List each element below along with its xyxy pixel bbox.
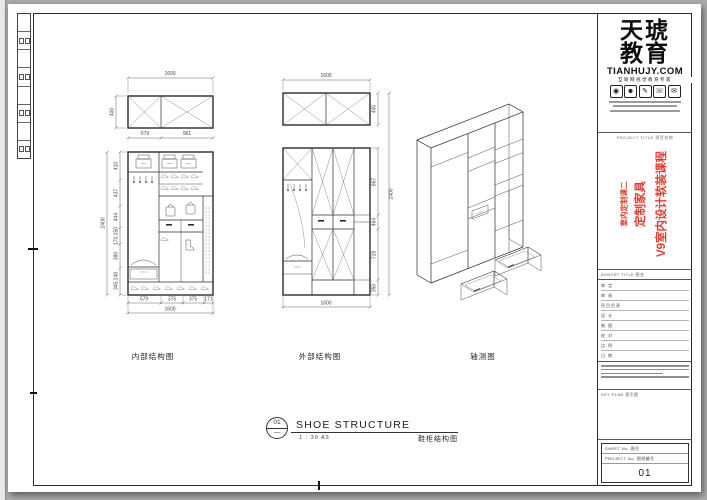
- revision-reference-strip: [17, 13, 31, 159]
- dim-label: 400: [372, 105, 378, 114]
- view-label-external: 外部结构图: [280, 351, 360, 362]
- border-tick: [28, 248, 38, 250]
- dim-label: 1600: [164, 307, 175, 313]
- view-label-axon: 轴测图: [443, 351, 523, 362]
- field-row: 校 对: [601, 331, 689, 341]
- dim-label: 444: [114, 213, 120, 222]
- project-title-box: PROJECT TITLE 项目名称 V9室内设计软装课程 定制家具 室内定制课…: [598, 133, 692, 270]
- dim-label: 2400: [101, 217, 107, 228]
- ref-cell: [18, 14, 30, 32]
- signature-fields: 审 定 审 核 项目负责 设 计 制 图 校 对 比 例 日 期: [598, 280, 692, 362]
- dim-label: 719: [372, 251, 378, 260]
- ref-cell: [18, 32, 30, 50]
- sheet-title-chinese: 鞋柜结构图: [390, 434, 458, 444]
- sheet-number-box: SHEET No. 图号 PROJECT No. 图纸编号 01: [601, 443, 689, 483]
- title-block: 天琥 教育 TIANHUJY.COM 互联网视觉教育专家 ◉ ☻ ✎ ☏ ✉ P…: [598, 13, 692, 486]
- phone-icon: ☏: [653, 85, 666, 98]
- ref-cell: [18, 123, 30, 141]
- brand-address-line: [609, 101, 681, 103]
- sheet-no-label: SHEET No. 图号: [602, 444, 688, 454]
- dim-label: 375: [189, 297, 198, 303]
- notes-block: [598, 362, 692, 390]
- dim-label: 400: [110, 108, 116, 117]
- detail-number-divider: —: [267, 429, 287, 438]
- dim-label: 410: [114, 162, 120, 171]
- sheet-scale: 1 : 30 A3: [299, 435, 330, 441]
- note-line: [601, 376, 689, 378]
- field-row: 审 核: [601, 291, 689, 301]
- dim-label: 961: [183, 131, 192, 137]
- project-no-label: PROJECT No. 图纸编号: [602, 454, 688, 464]
- axonometric-drawing: [400, 88, 565, 338]
- eye-icon: ◉: [610, 85, 623, 98]
- border-tick: [30, 392, 37, 394]
- detail-number-bubble: 01 —: [266, 417, 288, 439]
- field-row: 日 期: [601, 351, 689, 360]
- brand-address-line: [613, 105, 677, 107]
- brand-domain[interactable]: TIANHUJY.COM: [598, 66, 692, 77]
- dim-label: 1600: [320, 301, 331, 307]
- note-line: [601, 365, 689, 367]
- internal-structure-drawing: 1600 400 579 961: [95, 62, 225, 322]
- external-structure-drawing: 1600 400: [250, 62, 410, 322]
- ref-cell: [18, 87, 30, 105]
- dim-label: 1600: [164, 71, 175, 77]
- dim-label: 437: [114, 189, 120, 198]
- field-row: 项目负责: [601, 301, 689, 311]
- note-line: [601, 369, 689, 371]
- brand-name-line1: 天琥: [598, 19, 692, 42]
- dim-label: 345,148: [114, 272, 120, 290]
- field-row: 比 例: [601, 341, 689, 351]
- people-icon: ☻: [624, 85, 637, 98]
- dim-label: 579: [140, 297, 149, 303]
- brand-address-line: [610, 110, 680, 112]
- key-plan-box: KEY PLAN 索引图: [598, 390, 692, 440]
- field-row: 设 计: [601, 311, 689, 321]
- dim-label: 350: [372, 284, 378, 293]
- ref-cell: [18, 105, 30, 123]
- page-number: 01: [602, 464, 688, 482]
- field-row: 审 定: [601, 281, 689, 291]
- brand-name-line2: 教育: [598, 42, 692, 65]
- view-label-internal: 内部结构图: [113, 351, 193, 362]
- project-subject: 定制家具: [632, 181, 648, 227]
- field-row: 制 图: [601, 321, 689, 331]
- pen-icon: ✎: [639, 85, 652, 98]
- dim-label: 2400: [389, 188, 395, 199]
- ref-cell: [18, 141, 30, 158]
- project-course-name: V9室内设计软装课程: [653, 151, 669, 257]
- dim-label: 380: [114, 252, 120, 261]
- drawing-sheet-viewport: 1600 400 579 961: [0, 0, 707, 500]
- brand-tagline: 互联网视觉教育专家: [598, 77, 692, 83]
- dim-label: 1600: [320, 73, 331, 79]
- dim-label: 171: [204, 297, 213, 303]
- title-underline: [291, 432, 458, 433]
- dim-label: 867: [372, 178, 378, 187]
- project-lesson: 室内定制课二: [619, 181, 630, 226]
- dim-label: 375: [168, 297, 177, 303]
- detail-number: 01: [267, 418, 287, 429]
- dim-label: 579: [141, 131, 150, 137]
- ref-cell: [18, 68, 30, 86]
- sheet-title: SHOE STRUCTURE: [296, 419, 410, 431]
- mail-icon: ✉: [668, 85, 681, 98]
- adjacent-page-edge: [0, 0, 6, 500]
- ref-cell: [18, 50, 30, 68]
- brand-logo-section: 天琥 教育 TIANHUJY.COM 互联网视觉教育专家 ◉ ☻ ✎ ☏ ✉: [598, 13, 692, 133]
- dim-label: 464: [372, 218, 378, 227]
- border-tick: [318, 481, 320, 490]
- assort-title-row: ASSORT TITLE 图名: [598, 270, 692, 280]
- brand-icon-row: ◉ ☻ ✎ ☏ ✉: [598, 85, 692, 98]
- project-title-header: PROJECT TITLE 项目名称: [598, 135, 692, 141]
- note-line: [601, 373, 663, 375]
- dim-label: 170,150: [114, 227, 120, 245]
